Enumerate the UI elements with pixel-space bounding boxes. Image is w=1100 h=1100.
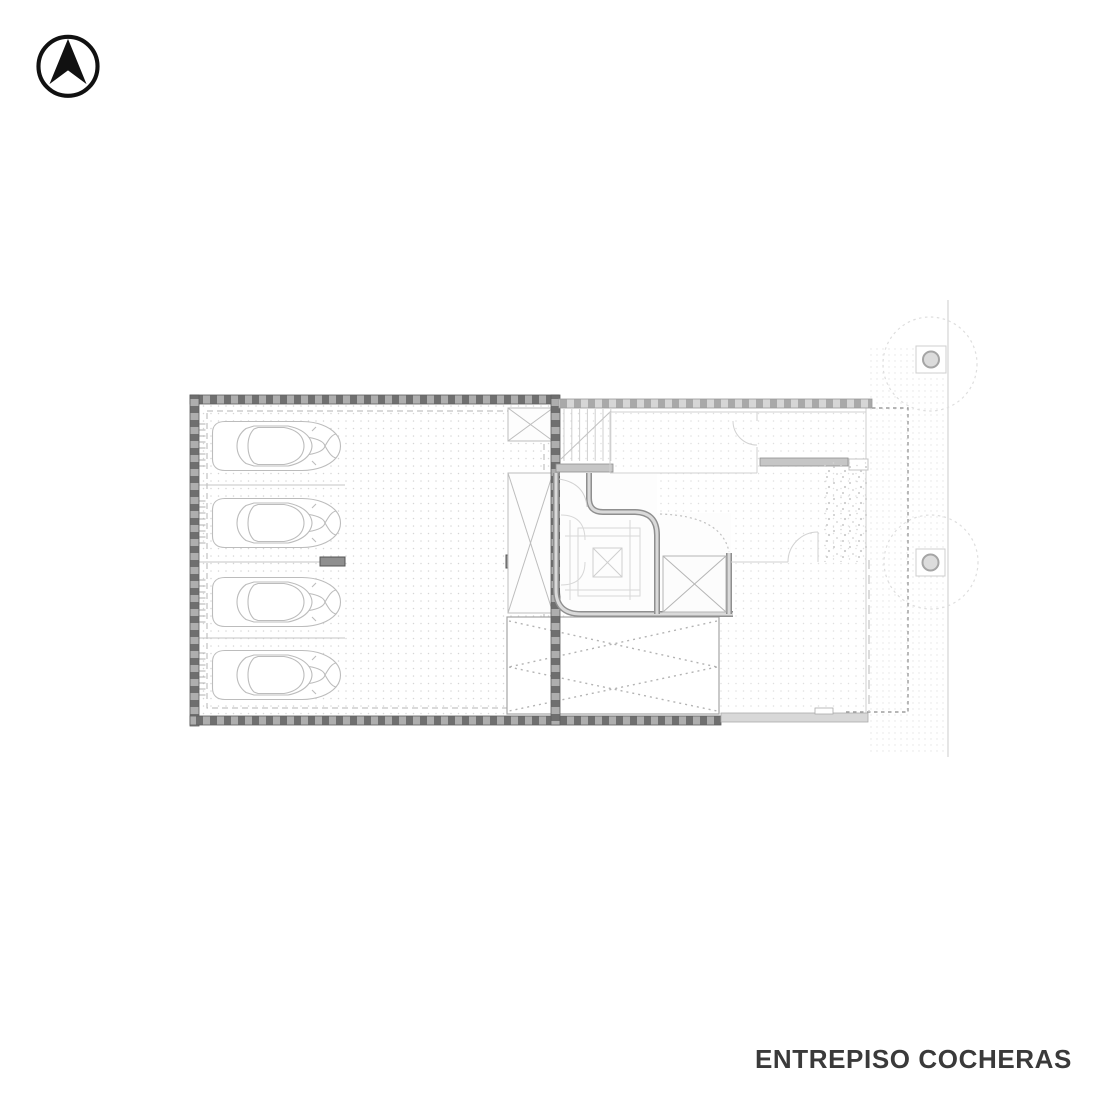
wing-top-wall <box>559 399 872 408</box>
car <box>213 651 341 700</box>
lamp-post <box>923 352 939 368</box>
garage-top-wall <box>190 395 559 404</box>
sidewalk-area <box>870 300 978 757</box>
garden-bed <box>822 462 868 562</box>
void-shafts <box>508 408 553 613</box>
ramp-outline <box>507 617 719 714</box>
car <box>213 499 341 548</box>
plan-title: ENTREPISO COCHERAS <box>572 1044 1072 1075</box>
lamp-post <box>923 555 939 571</box>
column <box>320 557 345 566</box>
wall-stub-left <box>556 464 613 472</box>
car <box>213 422 341 471</box>
band-notch <box>815 708 833 714</box>
floor-plan-page: ENTREPISO COCHERAS <box>0 0 1100 1100</box>
ramp-area <box>507 617 719 714</box>
stair-core-floor <box>560 472 657 613</box>
elevator <box>663 556 726 612</box>
garage-area <box>198 403 551 717</box>
floor-plan-svg <box>0 0 1100 1100</box>
garage-left-wall <box>190 395 199 726</box>
car <box>213 578 341 627</box>
garage-bottom-wall <box>190 716 721 725</box>
